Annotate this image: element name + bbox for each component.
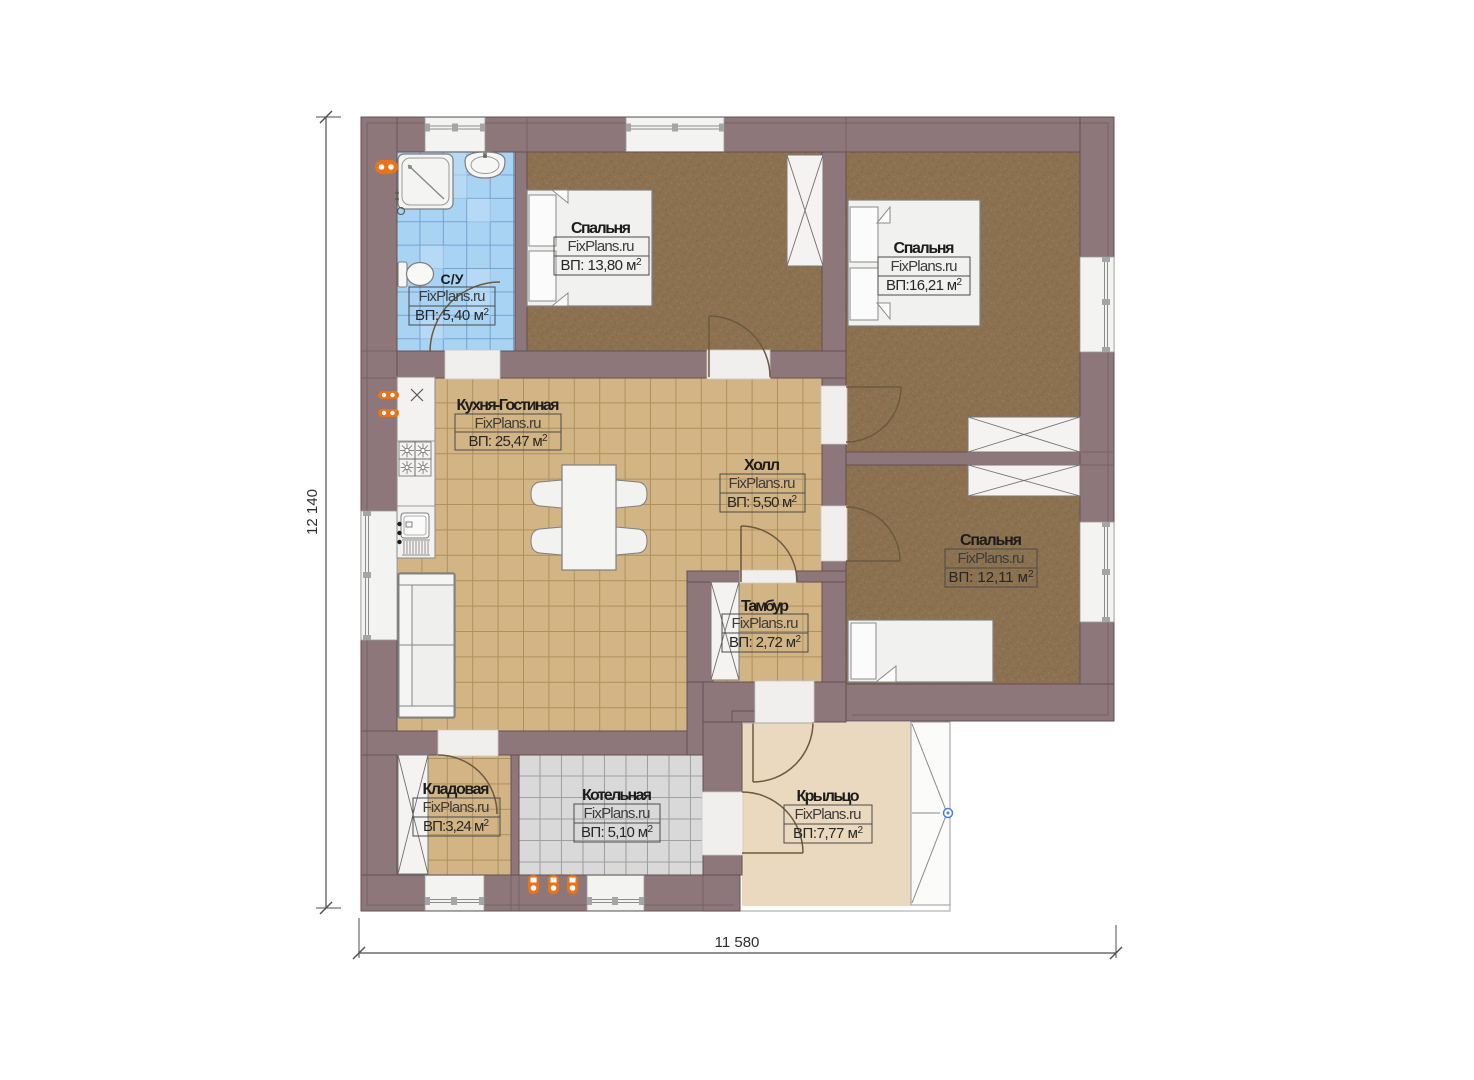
svg-text:Тамбур: Тамбур (741, 598, 789, 615)
svg-text:Кухня-Гостиная: Кухня-Гостиная (457, 397, 560, 414)
svg-text:ВП: 25,47 м2: ВП: 25,47 м2 (469, 433, 548, 450)
svg-text:Крыльцо: Крыльцо (797, 788, 860, 805)
svg-text:ВП: 5,40 м2: ВП: 5,40 м2 (415, 307, 489, 324)
svg-text:Холл: Холл (744, 457, 780, 474)
svg-text:FixPlans.ru: FixPlans.ru (729, 475, 796, 492)
svg-text:FixPlans.ru: FixPlans.ru (568, 238, 635, 255)
svg-text:ВП: 13,80 м2: ВП: 13,80 м2 (561, 257, 642, 274)
svg-text:ВП: 2,72 м2: ВП: 2,72 м2 (729, 634, 801, 651)
svg-text:Спальня: Спальня (960, 532, 1022, 549)
svg-text:ВП:3,24 м2: ВП:3,24 м2 (423, 818, 489, 835)
svg-text:FixPlans.ru: FixPlans.ru (958, 550, 1025, 567)
svg-text:ВП: 5,10 м2: ВП: 5,10 м2 (581, 824, 653, 841)
svg-text:FixPlans.ru: FixPlans.ru (891, 258, 958, 275)
svg-text:С/У: С/У (441, 271, 464, 287)
svg-text:Кладовая: Кладовая (423, 781, 490, 798)
svg-text:Котельная: Котельная (582, 787, 652, 804)
svg-text:FixPlans.ru: FixPlans.ru (795, 806, 862, 823)
svg-text:FixPlans.ru: FixPlans.ru (584, 805, 651, 822)
svg-text:FixPlans.ru: FixPlans.ru (475, 415, 542, 432)
svg-text:FixPlans.ru: FixPlans.ru (732, 615, 799, 632)
svg-text:ВП: 5,50 м2: ВП: 5,50 м2 (727, 494, 797, 511)
svg-text:Спальня: Спальня (894, 240, 955, 257)
svg-text:11 580: 11 580 (715, 934, 760, 951)
svg-text:ВП: 12,11 м2: ВП: 12,11 м2 (949, 569, 1034, 586)
svg-text:ВП:16,21 м2: ВП:16,21 м2 (886, 277, 962, 294)
svg-text:FixPlans.ru: FixPlans.ru (419, 288, 486, 305)
svg-text:ВП:7,77 м2: ВП:7,77 м2 (793, 825, 863, 842)
svg-text:FixPlans.ru: FixPlans.ru (423, 799, 490, 816)
svg-text:12 140: 12 140 (304, 489, 321, 535)
svg-text:Спальня: Спальня (571, 220, 631, 237)
